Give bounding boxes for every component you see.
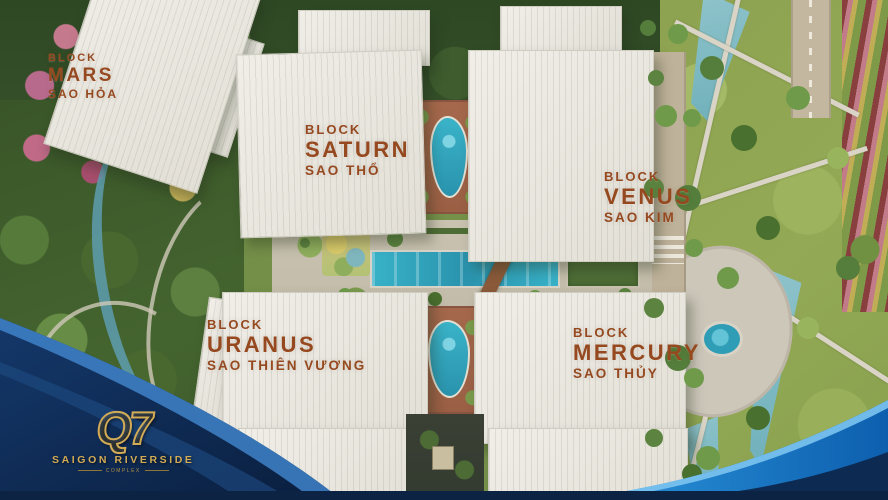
building-venus xyxy=(468,50,654,262)
playground xyxy=(322,230,370,276)
park-trees xyxy=(640,20,656,36)
label-block-uranus: BLOCK URANUS SAO THIÊN VƯƠNG xyxy=(207,317,366,374)
block-name: VENUS xyxy=(604,184,692,210)
tagline-text: COMPLEX xyxy=(106,468,141,474)
building-uranus-south xyxy=(238,428,430,500)
block-name: MARS xyxy=(48,65,118,87)
masterplan-scene: BLOCK MARS SAO HỎA BLOCK SATURN SAO THỔ … xyxy=(0,0,888,500)
label-block-venus: BLOCK VENUS SAO KIM xyxy=(604,169,692,226)
tagline-rule xyxy=(145,470,169,471)
block-name-vietnamese: SAO THỔ xyxy=(305,163,410,179)
logo-tagline: COMPLEX xyxy=(52,468,195,474)
block-word: BLOCK xyxy=(604,169,692,184)
label-block-mercury: BLOCK MERCURY SAO THỦY xyxy=(573,325,701,382)
label-block-saturn: BLOCK SATURN SAO THỔ xyxy=(305,122,410,179)
round-pond xyxy=(701,321,743,357)
crosswalk xyxy=(652,236,684,264)
block-word: BLOCK xyxy=(573,325,701,340)
amenity-trees xyxy=(300,238,310,248)
project-logo: Q7 SAIGON RIVERSIDE COMPLEX xyxy=(52,405,195,474)
road-lane-markings xyxy=(809,0,812,118)
logo-project-name: SAIGON RIVERSIDE xyxy=(52,454,195,466)
block-word: BLOCK xyxy=(207,317,366,332)
block-name: URANUS xyxy=(207,332,366,358)
block-name-vietnamese: SAO THỦY xyxy=(573,366,701,382)
block-name-vietnamese: SAO THIÊN VƯƠNG xyxy=(207,358,366,374)
block-name: MERCURY xyxy=(573,340,701,366)
block-name-vietnamese: SAO KIM xyxy=(604,210,692,226)
block-name-vietnamese: SAO HỎA xyxy=(48,87,118,101)
building-mercury-south xyxy=(488,428,688,500)
label-block-mars: BLOCK MARS SAO HỎA xyxy=(48,52,118,102)
logo-monogram: Q7 xyxy=(94,405,153,451)
block-word: BLOCK xyxy=(305,122,410,137)
block-name: SATURN xyxy=(305,137,410,163)
block-word: BLOCK xyxy=(48,52,118,65)
roadside-trees xyxy=(648,70,664,86)
tagline-rule xyxy=(78,470,102,471)
courtyard-pad xyxy=(432,446,454,470)
